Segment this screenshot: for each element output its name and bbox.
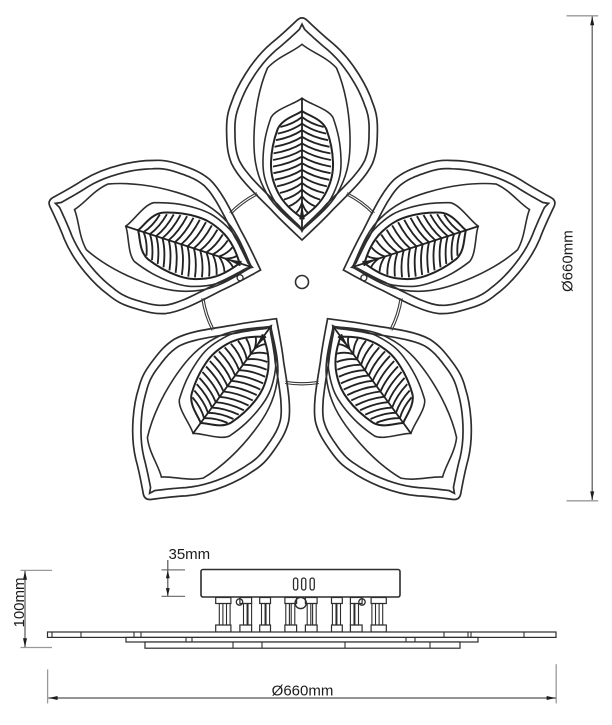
svg-text:Ø660mm: Ø660mm xyxy=(560,230,577,292)
svg-text:35mm: 35mm xyxy=(169,546,211,563)
svg-text:Ø660mm: Ø660mm xyxy=(272,683,334,700)
svg-text:100mm: 100mm xyxy=(11,577,28,627)
